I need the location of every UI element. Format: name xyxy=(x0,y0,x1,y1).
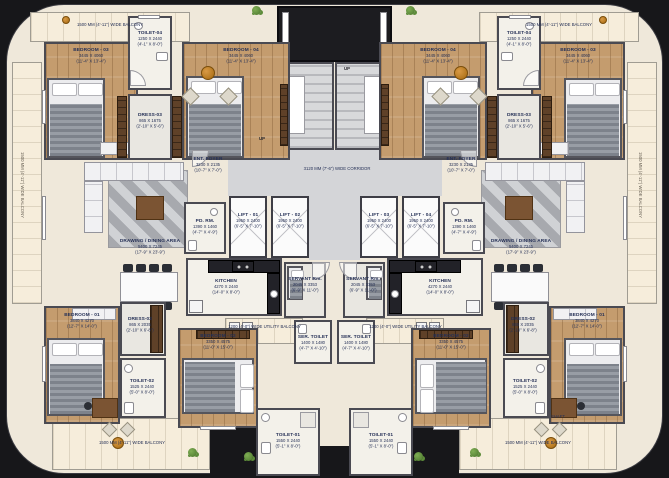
lift-02-label: LIFT - 02 1950 X 2400 (6'-5" X 7'-10") xyxy=(272,212,308,229)
fridge xyxy=(466,300,480,313)
desk-chair xyxy=(84,402,92,410)
desk-chair xyxy=(577,402,585,410)
washbasin xyxy=(261,413,270,422)
wardrobe xyxy=(117,96,127,158)
potted-plant xyxy=(201,66,215,80)
pillow xyxy=(595,343,620,356)
powder-room-left-label: PD. RM. 1390 X 1460 (4'-7" X 4'-9") xyxy=(185,218,225,235)
kitchen-left-label: KITCHEN 4270 X 2440 (14'-0" X 8'-0") xyxy=(196,278,256,295)
pillow xyxy=(420,364,434,388)
servant-toilet-left-label: SER. TOILET 1400 X 1480 (4'-7" X 4'-10") xyxy=(295,334,331,351)
dress-03-left-label: DRESS-03 865 X 1675 (2'-10" X 5'-6") xyxy=(129,112,171,129)
balcony-bottom-left-label: 1500 MM (4'-11") WIDE BALCONY xyxy=(62,440,202,446)
shower xyxy=(300,412,316,428)
powder-room-right-label: PD. RM. 1390 X 1460 (4'-7" X 4'-9") xyxy=(444,218,484,235)
washbasin xyxy=(398,413,407,422)
dress-02-right-label: DRESS-02 865 X 2035 (2'-10" X 6'-8") xyxy=(504,316,542,333)
blanket xyxy=(185,362,235,412)
shower xyxy=(353,412,369,428)
utility-balcony-left-label: 1200 (4'-0") WIDE UTILITY BALCONY xyxy=(228,324,301,330)
dining-chair xyxy=(507,264,517,272)
dining-chair xyxy=(162,264,172,272)
servant-room-right-label: SERVANT Rm. 2045 X 3353 (6'-9" X 11'-0") xyxy=(344,276,382,293)
corridor-label: 3120 MM (7'-6") WIDE CORRIDOR xyxy=(242,166,432,172)
pillow xyxy=(569,343,594,356)
drawing-dining-left-label: DRAWING / DINING AREA 5400 X 7245 (17'-9… xyxy=(106,238,194,255)
dining-chair xyxy=(494,264,504,272)
floor-plan-canvas: 1500 MM (4'-11") WIDE BALCONY 1500 MM (4… xyxy=(0,0,669,478)
stove xyxy=(232,261,254,272)
dining-table xyxy=(120,272,178,302)
sofa xyxy=(84,181,103,233)
kitchen-sink xyxy=(270,290,278,298)
pillow xyxy=(52,343,77,356)
dining-chair xyxy=(533,264,543,272)
lift-03-label: LIFT - 03 1950 X 2400 (6'-5" X 7'-10") xyxy=(361,212,397,229)
desk xyxy=(92,398,118,418)
wardrobe xyxy=(172,96,182,158)
coffee-table xyxy=(505,196,533,220)
shrub-plant xyxy=(188,448,197,457)
blanket xyxy=(425,104,477,156)
window xyxy=(623,196,627,240)
duct-shaft-block xyxy=(277,6,392,62)
bed xyxy=(422,76,480,158)
window xyxy=(623,346,627,382)
window xyxy=(42,346,46,382)
washbasin xyxy=(210,208,218,216)
pillow xyxy=(78,343,103,356)
shrub-plant xyxy=(406,6,415,15)
bedroom-01-right-label: BEDROOM - 01 3840 X 4270 (12'-7" X 14'-0… xyxy=(551,312,623,329)
utility-balcony-right-label: 1200 (4'-0") WIDE UTILITY BALCONY xyxy=(369,324,442,330)
toilet-02-left-label: TOILET-02 1525 X 2440 (5'-0" X 8'-0") xyxy=(121,378,163,395)
servant-room-left-label: SERVANT Rm. 2045 X 3353 (6'-9" X 11'-0") xyxy=(286,276,324,293)
balcony-top-right-label: 1500 MM (4'-11") WIDE BALCONY xyxy=(489,22,629,28)
pillow xyxy=(240,364,254,388)
dining-chair xyxy=(123,264,133,272)
staircase-left-up-label: UP xyxy=(256,136,268,142)
pillow xyxy=(569,83,594,96)
bed xyxy=(415,358,487,414)
bedroom-01-left-label: BEDROOM - 01 3840 X 4270 (12'-7" X 14'-0… xyxy=(46,312,118,329)
corridor-lift-lobby xyxy=(309,196,360,260)
shrub-plant xyxy=(252,6,261,15)
balcony-right-label: 1500 MM (4'-11") WIDE BALCONY xyxy=(638,110,643,260)
blanket xyxy=(436,362,486,412)
servant-toilet-right-label: SER. TOILET 1400 X 1480 (4'-7" X 4'-10") xyxy=(338,334,374,351)
staircase-right-up-label: UP xyxy=(341,66,353,72)
lift-01-label: LIFT - 01 1950 X 2400 (6'-5" X 7'-10") xyxy=(230,212,266,229)
blanket xyxy=(50,104,102,156)
window xyxy=(433,426,469,430)
bed xyxy=(47,78,105,158)
wc xyxy=(124,402,134,414)
washbasin xyxy=(451,208,459,216)
bed xyxy=(186,76,244,158)
wc xyxy=(501,52,513,61)
toilet-01-right-label: TOILET-01 1550 X 2440 (5'-1" X 8'-0") xyxy=(351,432,411,449)
bedroom-04-left-label: BEDROOM - 04 3445 X 4060 (11'-4" X 13'-4… xyxy=(196,47,286,64)
dining-chair xyxy=(520,264,530,272)
kitchen-right-label: KITCHEN 4270 X 2440 (14'-0" X 8'-0") xyxy=(410,278,470,295)
tv-console xyxy=(381,84,389,146)
sofa xyxy=(485,162,585,181)
kitchen-sink xyxy=(391,290,399,298)
dining-table xyxy=(491,272,549,302)
shrub-plant xyxy=(414,452,423,461)
window xyxy=(42,90,46,124)
bed xyxy=(564,78,622,158)
window xyxy=(509,15,531,19)
pillow xyxy=(240,389,254,413)
blanket xyxy=(567,104,619,156)
tv-console xyxy=(280,84,288,146)
pillow xyxy=(52,83,77,96)
blanket xyxy=(189,104,241,156)
wc xyxy=(535,402,545,414)
bedroom-04-right-label: BEDROOM - 04 3445 X 4060 (11'-4" X 13'-4… xyxy=(393,47,483,64)
dress-03-right-label: DRESS-03 865 X 1675 (2'-10" X 5'-6") xyxy=(498,112,540,129)
wardrobe xyxy=(542,96,552,158)
bedroom-03-right-label: BEDROOM - 03 3445 X 4060 (11'-4" X 13'-4… xyxy=(533,47,623,64)
pillow xyxy=(78,83,103,96)
potted-plant xyxy=(454,66,468,80)
lift-04-label: LIFT - 04 1950 X 2400 (6'-5" X 7'-10") xyxy=(403,212,439,229)
toilet-02-right-label: TOILET-02 1525 X 2440 (5'-0" X 8'-0") xyxy=(504,378,546,395)
window xyxy=(138,15,160,19)
fridge xyxy=(189,300,203,313)
coffee-table xyxy=(136,196,164,220)
dining-chair xyxy=(149,264,159,272)
pillow xyxy=(595,83,620,96)
pillow xyxy=(420,389,434,413)
toilet-04-right-label: TOILET-04 1250 X 2440 (4'-1" X 8'-0") xyxy=(498,30,540,47)
washbasin xyxy=(124,364,133,373)
plan-notch xyxy=(320,446,349,478)
shrub-plant xyxy=(470,448,479,457)
bedroom-02-right-label: BEDROOM - 02 3350 X 4575 (11'-0" X 15'-0… xyxy=(413,333,489,350)
toilet-04-left-label: TOILET-04 1250 X 2440 (4'-1" X 8'-0") xyxy=(129,30,171,47)
wc xyxy=(156,52,168,61)
stove xyxy=(415,261,437,272)
sofa xyxy=(84,162,184,181)
bed xyxy=(182,358,254,414)
dining-chair xyxy=(136,264,146,272)
dress-02-left-label: DRESS-02 865 X 2035 (2'-10" X 6'-8") xyxy=(121,316,159,333)
washbasin xyxy=(536,364,545,373)
balcony-left xyxy=(12,62,42,304)
shrub-plant xyxy=(244,452,253,461)
window xyxy=(623,90,627,124)
balcony-top-left-label: 1500 MM (4'-11") WIDE BALCONY xyxy=(40,22,180,28)
drawing-dining-right-label: DRAWING / DINING AREA 5400 X 7245 (17'-9… xyxy=(477,238,565,255)
toilet-01-left-label: TOILET-01 1550 X 2440 (5'-1" X 8'-0") xyxy=(258,432,318,449)
shaft-label: SHAFT xyxy=(543,414,573,420)
ent-foyer-right-label: ENT. FOYER 3230 X 2135 (10'-7" X 7'-0") xyxy=(439,156,483,173)
window xyxy=(200,426,236,430)
sofa xyxy=(566,181,585,233)
wardrobe xyxy=(487,96,497,158)
bedroom-03-left-label: BEDROOM - 03 3445 X 4060 (11'-4" X 13'-4… xyxy=(46,47,136,64)
balcony-bottom-right-label: 1500 MM (4'-11") WIDE BALCONY xyxy=(468,440,608,446)
bedroom-02-left-label: BEDROOM - 02 3350 X 4575 (11'-0" X 15'-0… xyxy=(180,333,256,350)
balcony-left-label: 1500 MM (4'-11") WIDE BALCONY xyxy=(20,110,25,260)
window xyxy=(42,196,46,240)
ent-foyer-left-label: ENT. FOYER 3230 X 2135 (10'-7" X 7'-0") xyxy=(186,156,230,173)
